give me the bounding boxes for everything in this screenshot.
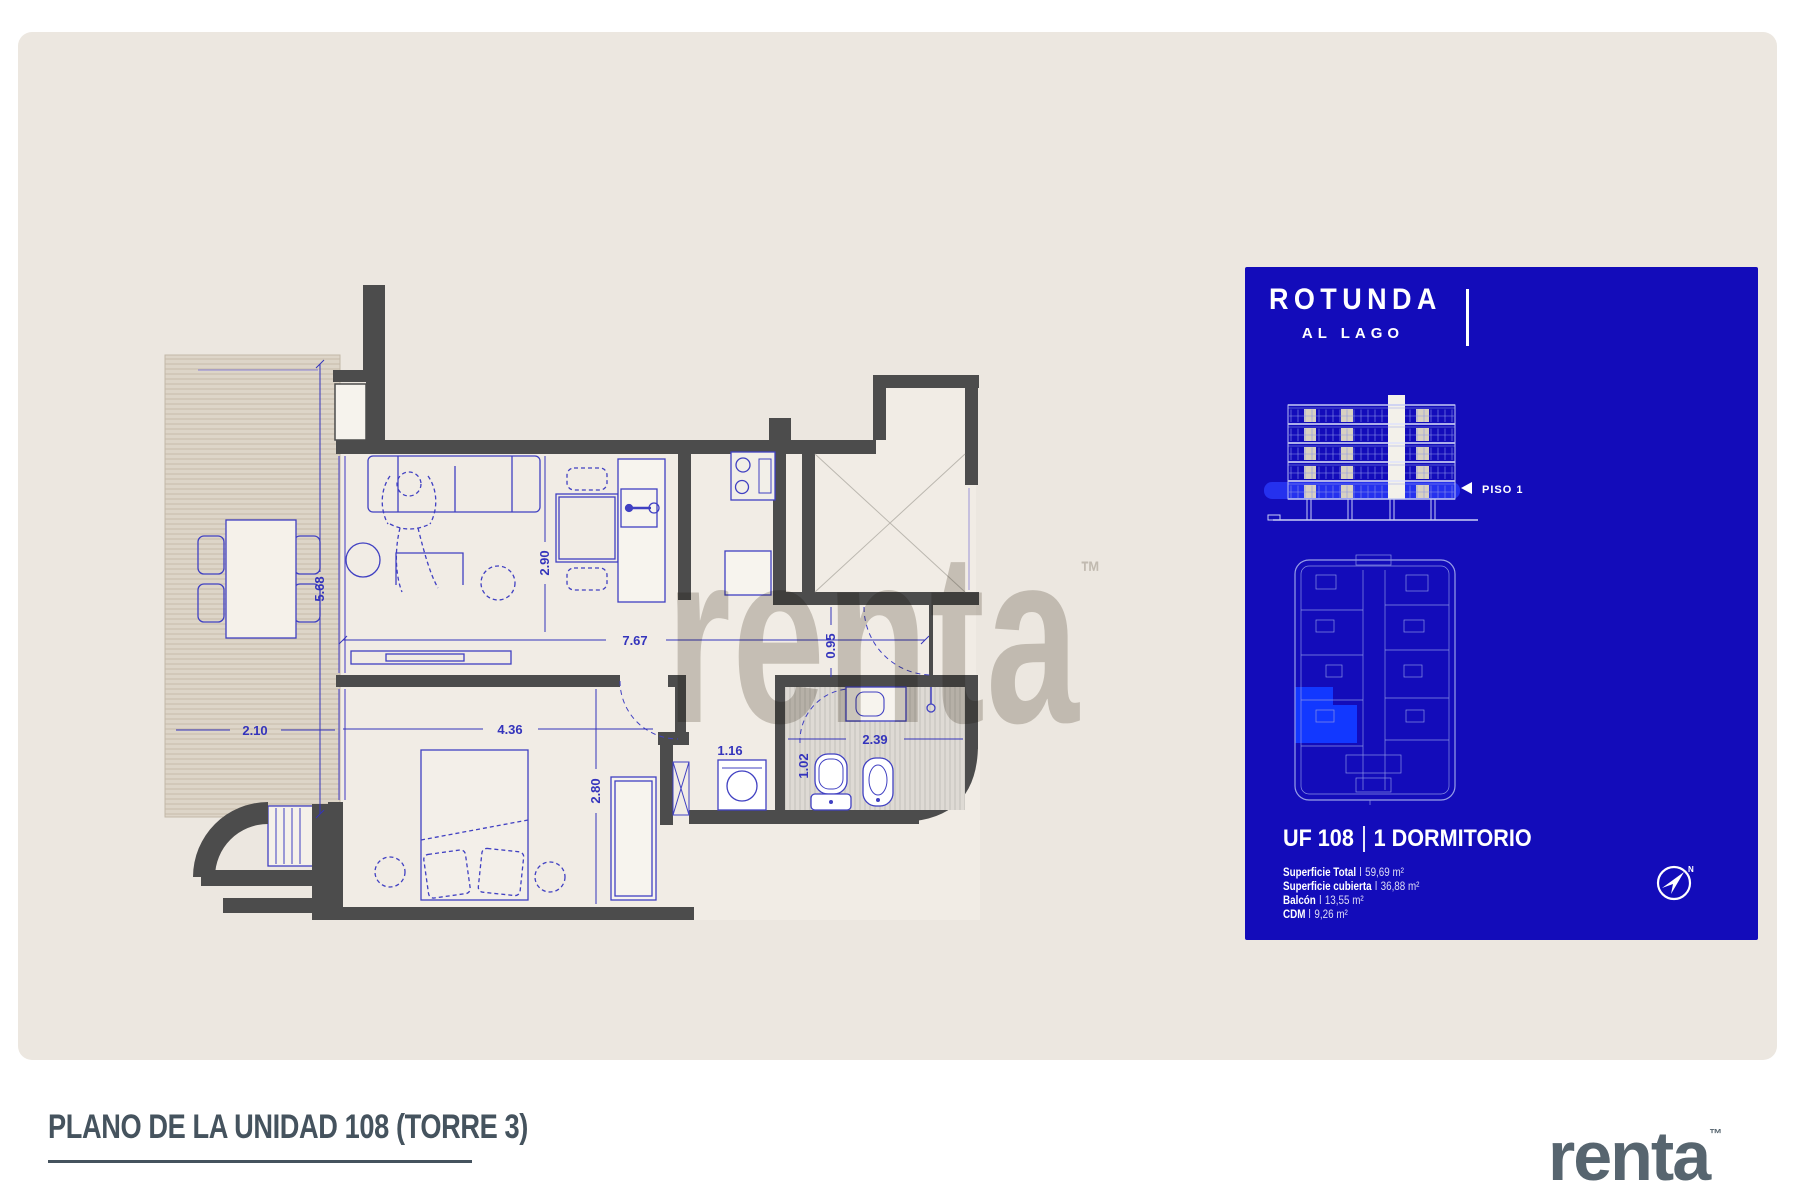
dim-bedroom-width: 4.36 [497, 722, 522, 737]
brand-block: ROTUNDA AL LAGO [1269, 283, 1461, 342]
title-divider [1363, 826, 1365, 852]
wardrobe [611, 777, 656, 900]
key-plan-detail [1301, 555, 1449, 805]
renta-logo: renta™ [1548, 1099, 1722, 1191]
floor-pointer-icon [1461, 482, 1472, 494]
renta-logo-tm: ™ [1709, 1126, 1722, 1141]
detail-row: CDM9,26 m² [1283, 907, 1419, 921]
detail-row: Superficie cubierta36,88 m² [1283, 879, 1419, 893]
floor-label: PISO 1 [1482, 484, 1523, 496]
key-plan [1286, 550, 1461, 805]
unit-type: 1 DORMITORIO [1374, 825, 1532, 853]
detail-row: Balcón13,55 m² [1283, 893, 1419, 907]
detail-value: 36,88 m² [1381, 879, 1420, 893]
unit-details: Superficie Total59,69 m² Superficie cubi… [1283, 865, 1449, 921]
detail-divider [1310, 909, 1311, 918]
compass-icon: N [1654, 859, 1698, 903]
detail-divider [1360, 867, 1361, 876]
detail-divider [1376, 881, 1377, 890]
dim-living-depth: 2.90 [537, 550, 552, 575]
unit-title: UF 108 1 DORMITORIO [1283, 825, 1532, 853]
compass-north-label: N [1688, 865, 1694, 874]
elevation-drawing [1268, 395, 1478, 520]
key-plan-highlight [1295, 687, 1357, 743]
building-elevation: PISO 1 [1258, 382, 1528, 532]
detail-divider [1320, 895, 1321, 904]
brand-title: ROTUNDA [1269, 283, 1442, 317]
detail-label: CDM [1283, 907, 1305, 921]
watermark-text: renta [666, 500, 1080, 774]
detail-label: Balcón [1283, 893, 1316, 907]
brand-subtitle: AL LAGO [1269, 325, 1437, 342]
watermark-logo: renta™ [666, 450, 1047, 710]
watermark-tm: ™ [1080, 556, 1100, 589]
bed [421, 750, 528, 900]
detail-row: Superficie Total59,69 m² [1283, 865, 1419, 879]
dim-bedroom-depth: 2.80 [588, 778, 603, 803]
plan-panel: 5.68 2.10 2.90 7.67 0.95 4.36 2.80 1.16 … [18, 32, 1777, 1060]
kitchen-island [618, 459, 665, 602]
unit-card: ROTUNDA AL LAGO [1245, 267, 1758, 940]
detail-value: 9,26 m² [1314, 907, 1347, 921]
detail-value: 13,55 m² [1325, 893, 1364, 907]
detail-value: 59,69 m² [1365, 865, 1404, 879]
page-title: PLANO DE LA UNIDAD 108 (TORRE 3) [48, 1108, 528, 1147]
dim-balcony-width: 2.10 [242, 723, 267, 738]
title-underline [48, 1160, 472, 1163]
renta-logo-text: renta [1548, 1117, 1709, 1195]
detail-label: Superficie Total [1283, 865, 1356, 879]
dim-balcony-length: 5.68 [312, 576, 327, 601]
unit-number: UF 108 [1283, 825, 1354, 853]
floor-highlight [1264, 482, 1460, 499]
detail-label: Superficie cubierta [1283, 879, 1372, 893]
brand-divider [1466, 289, 1469, 346]
balcony [165, 355, 340, 866]
elevator-core [1388, 395, 1405, 499]
dim-total-width: 7.67 [622, 633, 647, 648]
